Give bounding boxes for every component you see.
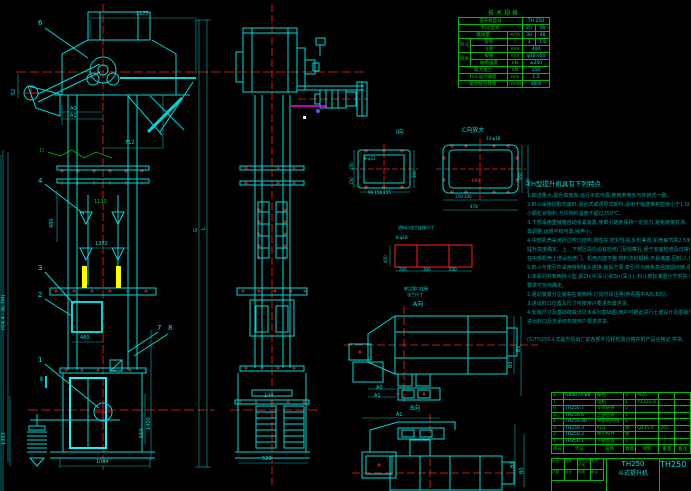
dim-i-l2: 150 [350,177,354,185]
tech-cell: 容积 [471,39,508,46]
note-line: 1.输送量大,提升高度高,运行平稳可靠,使用寿命长与环链式一致。 [527,192,690,201]
dim-f-holes: 8-φ18 [396,236,408,240]
note-line: 进出料口及支承结构按用户要求供货。 [527,318,690,327]
tech-cell: kN [508,67,523,74]
dim-right-low: 550 [140,428,145,438]
tech-cell: 破断强度 [471,60,508,67]
note-line: 5.料斗与牵引件采用特制接头连接,装拆方便,牵引件为两条高强度圆环链,强度高,耐… [527,264,690,273]
tech-cell: 驱动链轮转速 [459,81,508,88]
dim-right-total: 1400 [147,417,152,430]
tech-cell: m/s [508,74,523,81]
label-d: D [40,149,44,154]
dim-left-small: 52 [12,89,17,95]
tech-cell: mm [508,46,523,53]
tech-cell: mm [508,53,523,60]
dim-g: G [194,228,199,232]
drawing-number: TH250 [660,459,691,491]
tech-cell: kN [508,60,523,67]
parts-header: 备注 [675,445,691,454]
dust-label-2: 法兰尺寸 [407,293,423,297]
drawing-name: 斗式提升机 [607,469,659,478]
dim-mid-v: 480 [50,218,55,228]
tech-cell: 1.6 [536,39,550,46]
tech-cell: m³/h [508,32,523,39]
note-line: 2.驱动装置分左装和右装两种,订货时请注明(参看图中A向,B向)。 [527,291,690,300]
dim-mid-green: 1130 [94,200,107,205]
note-line: (5)TH250斗式提升机出厂前各部件均经检验合格并附产品合格证 供货。 [527,336,690,345]
flange-title: 进料口法兰连接尺寸 [398,226,434,230]
drawing-model: TH250 [607,459,659,469]
view-label-i: Ⅰ向 [396,130,404,136]
view-label-c: C向放大 [462,128,484,134]
note-line: 小颗粒状物料,允许物料温度不超过250℃。 [527,210,690,219]
title-block-small-grid: 标记处数更改文件号签名日期设计校核审定 [552,459,607,491]
title-block-small-cell: 标记 [552,459,565,470]
dim-mid-width: 1382 [95,242,108,247]
title-block-small-cell: 日期 [552,470,565,481]
parts-header: 序号 [552,445,564,454]
dim-head-out: 712 [125,141,135,146]
balloon-4: 4 [38,178,42,185]
parts-header-row: 序号 代号 名称 数量 材料 重量 备注 [552,445,691,454]
tech-cell: 料斗运行速度 [459,74,508,81]
dim-i-r: 300 [413,170,417,178]
balloon-6: 6 [38,20,42,27]
dim-left-total: 1333 [2,432,7,445]
tech-cell: Sh [536,25,550,32]
dim-top-width: 1173 [136,12,149,17]
note-line: 4.安装尺寸及基础荷载详见本系列基础图,用户可据此进行土建设计及基础施工,并以Y… [527,309,690,318]
balloon-7: 7 [157,325,161,332]
note-line: 需调整,运转平稳可靠,噪声小。 [527,228,690,237]
dim-i-holes: 8-φ12 [364,157,376,161]
dim-c-holes: 13-φ18 [486,137,500,141]
dim-a0: A0 [70,107,77,112]
note-line [527,327,690,336]
notes-heading: TH型提升机具有下列特点 [527,180,690,188]
tech-cell: 链条 [459,53,471,67]
tech-cell: 料斗 [459,39,471,53]
dim-side-gap: 144 [264,394,274,399]
parts-header: 材料 [636,445,659,454]
tech-cell: 规格 [471,53,508,60]
dim-a-b1: B1 [517,345,522,352]
tech-cell: 30 [523,32,536,39]
tech-cell: Zh [523,25,536,32]
note-line: 1.本系列共有两种斗型,即Zh(中深斗)和Sh(深斗), 料斗按标准图分节供货,… [527,273,690,282]
title-block-small-cell: 审定 [591,470,604,481]
tech-cell: 斗距 [471,46,508,53]
notes-block: TH型提升机具有下列特点 1.输送量大,提升高度高,运行平稳可靠,使用寿命长与环… [527,180,690,345]
dim-a1: A1 [70,114,77,119]
dim-side-boot: 520 [262,457,272,462]
balloon-8: 8 [168,325,172,332]
parts-header: 重量 [659,445,675,454]
tech-cell: 48 [536,32,550,39]
tech-table-title: 技术规格 [462,8,546,17]
dust-label-1: 收尘管口连接 [404,287,428,291]
dim-i-l1: 150 [350,162,354,170]
note-line: 2.料斗采用挖取式装料,混合式或诱导式卸料,适用于输送堆积密度小于1.5t/m³… [527,201,690,210]
title-block-small-cell: 处数 [565,459,578,470]
tech-cell: r/min [508,81,523,88]
tech-cell: 最大张力 [459,67,508,74]
dim-f-b2: 300 [423,268,431,272]
parts-list-table: 8 GB9074-88 螺栓 4 M20 7 电机 1 Y132S-4 6 [551,392,691,454]
dim-f-b3: 200 [449,268,457,272]
tech-cell: TH 250 [523,18,550,25]
tech-cell: φ18×64 [523,53,550,60]
dim-c-b2: 478 [470,205,478,209]
dim-a-a0: A0 [376,386,383,391]
title-block: 标记处数更改文件号签名日期设计校核审定 TH250 斗式提升机 TH250 [551,458,691,491]
section-mark-2: Ⅱ [40,377,43,383]
title-block-center: TH250 斗式提升机 [607,459,660,491]
dim-i-bottom: 99 158 155 [368,191,391,195]
parts-header: 数量 [624,445,636,454]
note-line: 4.中部机壳采用折边咬口结构,刚性好,密封性强,外形美观;机壳每节高2.5米,中… [527,237,690,246]
balloon-1: 1 [38,357,42,364]
dim-a-b0: B0 [509,361,514,368]
tech-cell: 料斗型式 [459,25,523,32]
notes-lines: 1.输送量大,提升高度高,运行平稳可靠,使用寿命长与环链式一致。2.料斗采用挖取… [527,192,690,345]
balloon-3: 3 [38,265,42,272]
tech-cell: 400 [523,46,550,53]
note-line: 提升高度确定。上、下部区段均设有检修门及观察孔,便于安装检修及日常维护,若需要时… [527,246,690,255]
dim-l: L [202,227,207,230]
view-label-a: A向 [413,302,423,308]
note-line: 要求可协商确定。 [527,282,690,291]
title-block-small-cell: 校核 [578,470,591,481]
tech-cell: 3 [523,39,536,46]
tech-spec-table: 提升机型号TH 250 料斗型式ZhSh 输送量m³/h3048 料斗容积l31… [458,17,550,88]
note-line: 3.进出料口位置及尺寸可按用户要求布置供货。 [527,300,690,309]
title-block-small-cell: 签名 [591,459,604,470]
tech-cell: ≥250 [523,60,550,67]
tech-cell: 提升机型号 [459,18,523,25]
dim-boot-w: 480 [80,336,90,341]
dim-b-b1: B1 [511,461,516,468]
tech-cell: l [508,39,523,46]
dim-f-b1: 200 [399,268,407,272]
dim-c-b1: 150 300 [455,195,472,199]
note-line: 在中部机壳上增设检修门。机壳内壁平整,物料流动顺畅,不易堵塞,回料少,提升效率高… [527,255,690,264]
dim-c-r1: 350 [519,172,523,180]
tech-cell: 48.8 [523,81,550,88]
dim-b-b0: B0 [520,467,525,474]
view-label-b: B向 [410,406,420,412]
dim-f-left: 450 [384,255,388,263]
title-block-small-cell: 设计 [565,470,578,481]
title-block-small-cell: 更改文件号 [578,459,591,470]
dim-a-a1: A1 [374,394,381,399]
dim-height-note: H(4.4~36.7M) [2,295,7,330]
dim-c-r2: 420 [526,178,530,186]
parts-cell-mat: Y132S-4 [636,399,659,406]
note-line: 3.下部采用重锤箱自动张紧装置,使牵引链条保持一定张力,避免链条打滑、脱链,一般… [527,219,690,228]
tech-cell: 1.2 [523,74,550,81]
parts-header: 名称 [595,445,623,454]
dim-b-a1: A1 [396,413,403,418]
parts-header: 代号 [564,445,596,454]
dim-c-center: 660 [472,179,480,183]
cad-viewport[interactable]: 技术规格 提升机型号TH 250 料斗型式ZhSh 输送量m³/h3048 料斗… [0,0,691,491]
dim-bottom-w: 1044 [96,460,109,465]
tech-cell: 输送量 [459,32,508,39]
balloon-2: 2 [38,292,42,299]
tech-cell: 250 [523,67,550,74]
